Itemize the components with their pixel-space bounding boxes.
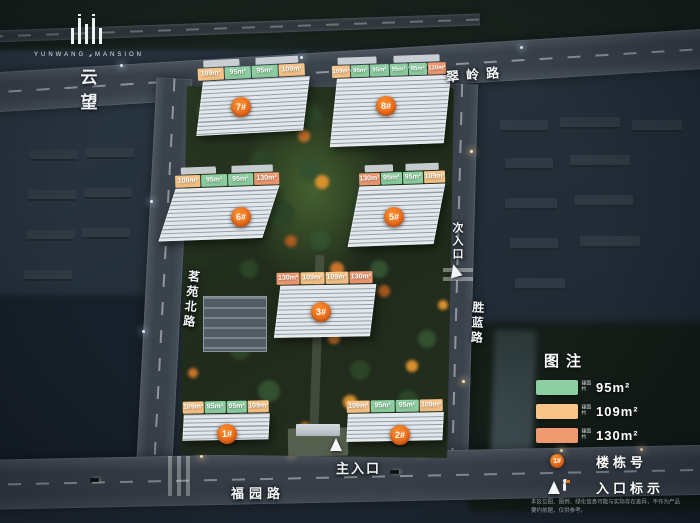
legend-item-95: 建面约 95m² — [534, 379, 694, 395]
context-building — [570, 155, 630, 167]
building-8-badge: 8# — [376, 96, 396, 116]
autumn-tree — [315, 175, 329, 189]
street-light — [200, 455, 203, 458]
legend-person-icon — [563, 483, 566, 491]
context-building — [500, 120, 548, 132]
disclaimer-text: 本区位图、图例、绿化信息可能与实际存在差异，不作为产品要约依据，仅供参考。 — [531, 499, 682, 516]
logo-subtitle-left: YUNWANG — [34, 52, 86, 58]
road-label-fuyuan: 福园路 — [231, 483, 285, 502]
road-label-cuiling: 翠岭路 — [445, 61, 506, 85]
main-entrance-arrow-icon — [330, 438, 342, 451]
autumn-tree — [285, 235, 297, 247]
legend-item-entrance: 入口标示 — [534, 479, 694, 495]
street-light — [462, 380, 465, 383]
area-tag-95: 95m² — [402, 171, 423, 184]
context-building — [575, 195, 633, 207]
area-tag-109: 109m² — [198, 67, 225, 80]
autumn-tree — [188, 368, 198, 378]
street-light — [470, 150, 473, 153]
area-tag-95: 95m² — [224, 66, 251, 79]
legend-building-badge: 1# — [550, 454, 564, 468]
area-tag-109: 109m² — [419, 399, 442, 411]
community-building — [203, 296, 267, 352]
road-label-shenglan: 胜蓝路 — [468, 301, 487, 347]
context-building — [28, 190, 76, 201]
area-tag-130: 130m² — [359, 173, 380, 186]
area-tag-109: 109m² — [424, 171, 445, 184]
legend-title: 图注 — [544, 350, 694, 371]
tree — [240, 260, 258, 278]
district-bottom-left — [0, 295, 152, 465]
tree — [350, 360, 370, 380]
legend-swatch-95 — [536, 380, 578, 395]
legend-label-entrance: 入口标示 — [596, 478, 664, 497]
area-tag-95: 95m² — [370, 64, 389, 77]
building-3-badge: 3# — [311, 302, 331, 322]
context-building — [632, 120, 682, 132]
area-tag-109: 109m² — [278, 63, 305, 76]
area-tag-109: 109m² — [301, 272, 324, 284]
autumn-tree — [406, 360, 418, 372]
site-plan-rendering: 109m²95m²95m²109m² 109m²95m²95m²95m²95m²… — [0, 0, 700, 523]
legend-label-building-number: 楼栋号 — [596, 452, 647, 471]
logo-subtitle: YUNWANG MANSION — [34, 52, 144, 58]
building-5-badge: 5# — [384, 207, 404, 227]
legend-label-109: 109m² — [596, 404, 639, 419]
building-2-badge: 2# — [390, 425, 410, 445]
legend-swatch-109 — [536, 404, 578, 419]
main-entrance-label: 主入口 — [336, 458, 381, 477]
context-building — [505, 158, 553, 170]
legend-prefix: 建面约 — [582, 382, 594, 393]
area-tag-109: 109m² — [248, 400, 269, 412]
autumn-tree — [438, 300, 448, 310]
building-7: 109m²95m²95m²109m² — [197, 55, 308, 135]
secondary-entrance-label: 次入口 — [449, 222, 465, 261]
building-6-body — [158, 185, 279, 241]
autumn-tree — [298, 130, 310, 142]
context-building — [510, 238, 558, 250]
building-6: 109m²95m²95m²130m² — [175, 164, 281, 241]
context-building — [30, 150, 78, 161]
area-tag-95: 95m² — [381, 172, 402, 185]
street-light — [520, 46, 523, 49]
project-logo: YUNWANG MANSION 云 望 — [34, 14, 144, 113]
logo-title: 云 望 — [34, 63, 144, 113]
building-3-area-tags: 130m²109m²109m²130m² — [276, 271, 372, 285]
area-tag-109: 109m² — [347, 400, 370, 412]
diamond-icon — [89, 54, 92, 57]
building-6-badge: 6# — [231, 207, 251, 227]
tree — [370, 260, 388, 278]
legend-label-130: 130m² — [596, 428, 639, 443]
area-tag-95: 95m² — [251, 65, 278, 78]
car — [90, 478, 99, 482]
context-building — [515, 278, 565, 290]
legend-swatch-130 — [536, 428, 578, 443]
area-tag-95: 95m² — [408, 63, 427, 76]
tree — [310, 230, 330, 250]
area-tag-95: 95m² — [201, 174, 227, 187]
area-tag-95: 95m² — [204, 401, 225, 413]
autumn-tree — [378, 285, 390, 297]
legend-label-95: 95m² — [596, 380, 630, 395]
context-building — [82, 228, 130, 239]
entrance-gate — [296, 424, 340, 436]
area-tag-109: 109m² — [325, 272, 348, 284]
context-building — [505, 198, 557, 210]
legend-item-109: 建面约 109m² — [534, 403, 694, 419]
area-tag-95: 95m² — [226, 401, 247, 413]
tree — [418, 330, 436, 348]
car — [390, 470, 399, 474]
context-building — [26, 230, 74, 241]
context-building — [86, 148, 134, 159]
area-tag-95: 95m² — [351, 65, 370, 78]
area-tag-130: 130m² — [349, 271, 372, 283]
legend-item-130: 建面约 130m² — [534, 427, 694, 443]
logo-mark-icon — [67, 14, 111, 48]
building-2-area-tags: 109m²95m²95m²109m² — [347, 399, 443, 413]
street-light — [142, 330, 145, 333]
legend-panel: 图注 建面约 95m² 建面约 109m² 建面约 130m² 1# 楼栋号 入… — [534, 350, 694, 495]
crosswalk — [168, 456, 194, 496]
area-tag-109: 109m² — [332, 65, 351, 78]
context-building — [24, 270, 72, 281]
area-tag-95: 95m² — [228, 173, 254, 186]
area-tag-95: 95m² — [395, 400, 418, 412]
area-tag-130: 130m² — [276, 272, 299, 284]
building-7-badge: 7# — [231, 97, 251, 117]
context-building — [560, 117, 620, 129]
street-light — [150, 200, 153, 203]
context-building — [84, 188, 132, 199]
area-tag-95: 95m² — [389, 63, 408, 76]
building-7-body — [196, 76, 310, 136]
tree — [258, 380, 280, 402]
area-tag-109: 109m² — [175, 175, 201, 188]
legend-prefix: 建面约 — [582, 406, 594, 417]
logo-subtitle-right: MANSION — [95, 52, 144, 58]
legend-item-building-number: 1# 楼栋号 — [534, 453, 694, 469]
context-building — [580, 236, 640, 248]
legend-entrance-arrow-icon — [548, 481, 560, 494]
building-1-area-tags: 109m²95m²95m²109m² — [183, 400, 269, 413]
legend-prefix: 建面约 — [582, 430, 594, 441]
area-tag-109: 109m² — [183, 401, 204, 413]
area-tag-130: 130m² — [254, 172, 280, 185]
area-tag-95: 95m² — [371, 400, 394, 412]
building-1-badge: 1# — [217, 424, 237, 444]
building-5: 130m²95m²95m²109m² — [359, 163, 448, 247]
area-tag-130: 130m² — [428, 62, 447, 75]
